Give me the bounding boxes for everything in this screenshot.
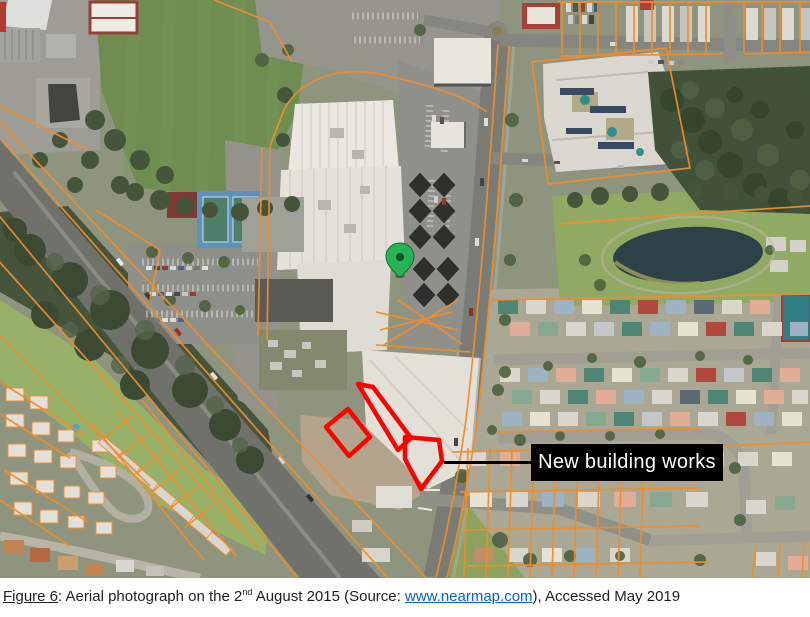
aerial-figure: New building works: [0, 0, 810, 578]
caption-text-3: ), Accessed May 2019: [533, 588, 681, 605]
figure-caption: Figure 6: Aerial photograph on the 2nd A…: [0, 578, 810, 607]
caption-text-1: Aerial photograph on the 2: [66, 588, 243, 605]
aerial-photo: [0, 0, 810, 578]
caption-superscript: nd: [242, 587, 252, 597]
annotation-leader-line: [444, 461, 532, 464]
caption-text-2: August 2015 (Source:: [252, 588, 405, 605]
new-building-works-label: New building works: [531, 444, 723, 481]
caption-separator: :: [58, 588, 66, 605]
document-page: New building works Figure 6: Aerial phot…: [0, 0, 810, 617]
nearmap-link[interactable]: www.nearmap.com: [405, 588, 533, 605]
figure-number: Figure 6: [3, 588, 58, 605]
